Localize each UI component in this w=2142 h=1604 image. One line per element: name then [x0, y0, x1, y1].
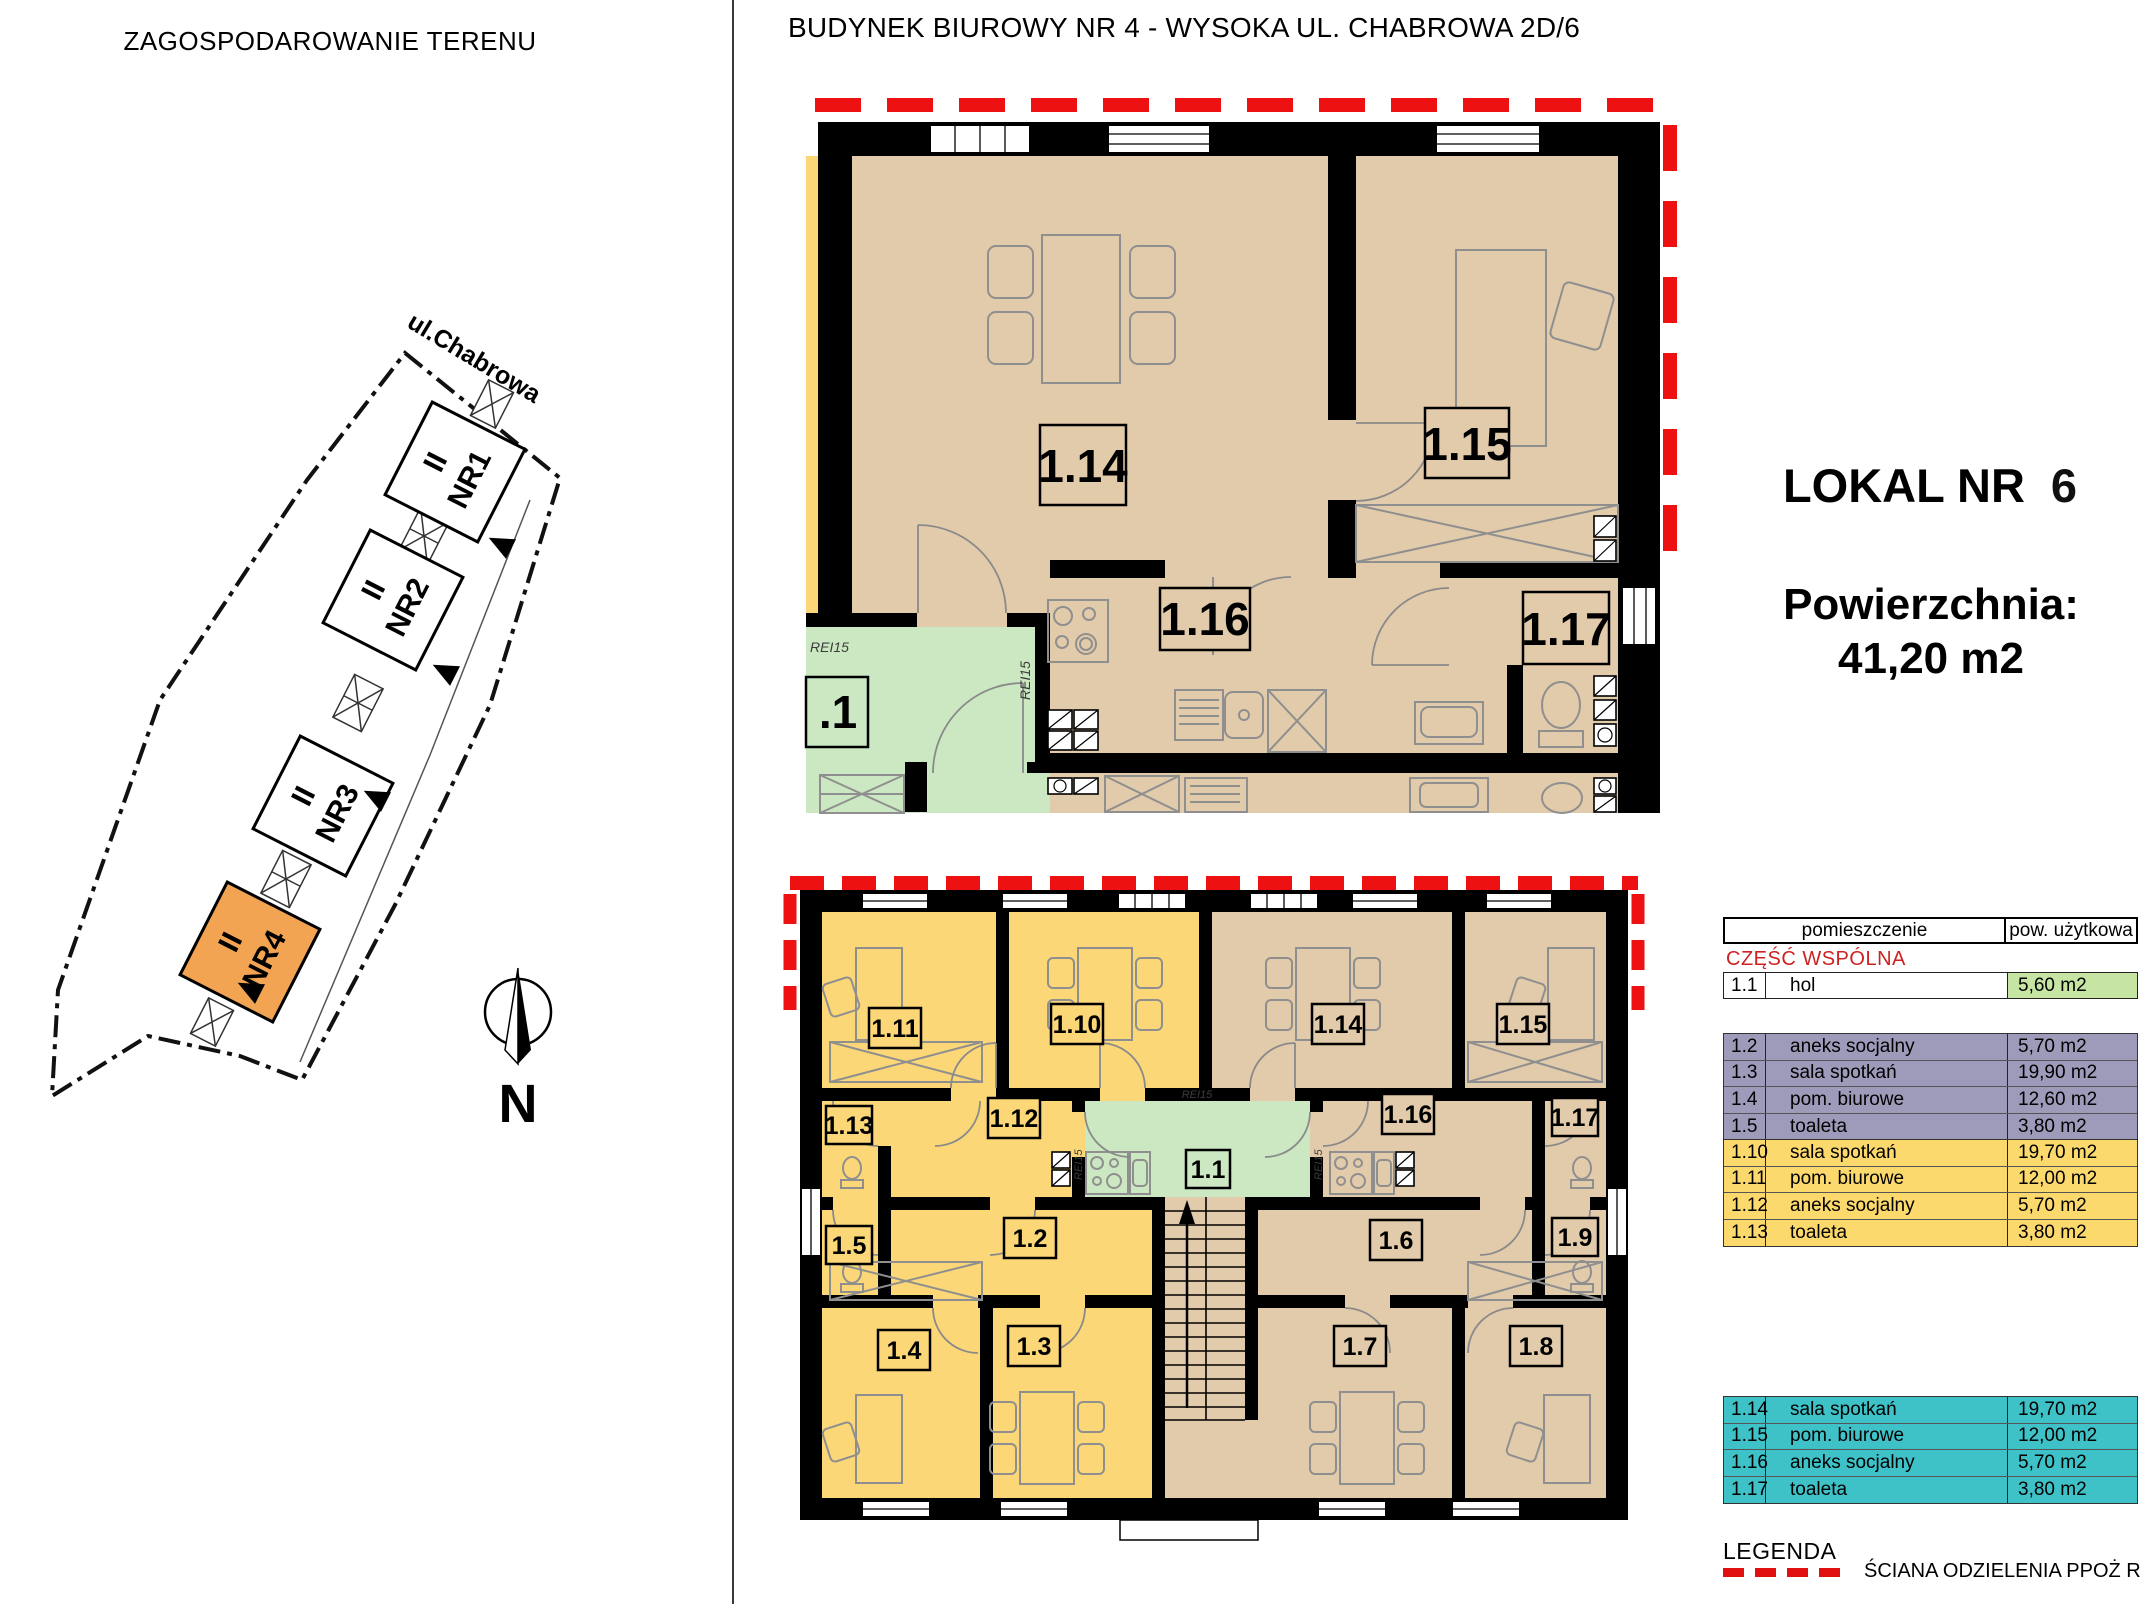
row-name: sala spotkań [1766, 1061, 2007, 1087]
row-area: 5,60 m2 [2007, 973, 2137, 998]
floor-label-1-5: 1.5 [832, 1232, 867, 1260]
row-area: 3,80 m2 [2007, 1114, 2137, 1141]
room-label-hall: .1 [819, 686, 857, 738]
rei15-floor-top: REI15 [1182, 1089, 1213, 1101]
room-label-1-17: 1.17 [1521, 603, 1611, 655]
row-name: sala spotkań [1766, 1397, 2007, 1423]
table-row: 1.3sala spotkań19,90 m2 [1724, 1061, 2137, 1088]
table-header-room: pomieszczenie [1725, 920, 2004, 942]
row-id: 1.13 [1724, 1220, 1766, 1247]
row-id: 1.15 [1724, 1424, 1766, 1450]
table-row: 1.16aneks socjalny5,70 m2 [1724, 1450, 2137, 1477]
row-id: 1.17 [1724, 1477, 1766, 1504]
floor-label-1-15: 1.15 [1499, 1011, 1548, 1039]
floor-plan-full: 1.11 1.10 1.14 1.15 1.13 1.12 1.16 1.17 … [770, 860, 1660, 1560]
row-id: 1.12 [1724, 1193, 1766, 1219]
building-nr3: II NR3 [253, 736, 393, 876]
floor-label-1-6: 1.6 [1379, 1227, 1414, 1255]
row-id: 1.3 [1724, 1061, 1766, 1087]
room-label-1-15: 1.15 [1422, 418, 1512, 470]
table-row: 1.2aneks socjalny5,70 m2 [1724, 1034, 2137, 1061]
table-group-purple: 1.2aneks socjalny5,70 m2 1.3sala spotkań… [1723, 1033, 2138, 1141]
table-row: 1.12aneks socjalny5,70 m2 [1724, 1193, 2137, 1220]
row-id: 1.16 [1724, 1450, 1766, 1476]
row-area: 12,00 m2 [2007, 1424, 2137, 1450]
row-id: 1.10 [1724, 1140, 1766, 1166]
row-id: 1.14 [1724, 1397, 1766, 1423]
floor-label-1-10: 1.10 [1053, 1011, 1102, 1039]
floor-label-1-8: 1.8 [1519, 1333, 1554, 1361]
building-title: BUDYNEK BIUROWY NR 4 - WYSOKA UL. CHABRO… [788, 12, 1598, 44]
legend-fire-wall-label: ŚCIANA ODZIELENIA PPOŻ REI120 [1864, 1560, 2142, 1583]
table-header: pomieszczenie pow. użytkowa [1723, 917, 2138, 944]
row-area: 12,00 m2 [2007, 1167, 2137, 1193]
floor-label-1-2: 1.2 [1013, 1225, 1048, 1253]
row-area: 19,70 m2 [2007, 1140, 2137, 1166]
fire-wall-dash-sample [1723, 1568, 1848, 1577]
table-row: 1.4pom. biurowe12,60 m2 [1724, 1087, 2137, 1114]
unit-title: LOKAL NR6 [1740, 458, 2120, 513]
building-nr2: II NR2 [323, 530, 463, 670]
legend-title: LEGENDA [1723, 1538, 1836, 1565]
table-row: 1.13toaleta3,80 m2 [1724, 1220, 2137, 1247]
rei15-label-rotated: REI15 [1017, 661, 1033, 700]
row-area: 5,70 m2 [2007, 1034, 2137, 1060]
table-row: 1.11pom. biurowe12,00 m2 [1724, 1167, 2137, 1194]
rei15-label: REI15 [810, 639, 849, 655]
floor-label-1-14: 1.14 [1314, 1011, 1363, 1039]
floor-label-1-9: 1.9 [1558, 1224, 1593, 1252]
common-area-label: CZĘŚĆ WSPÓLNA [1726, 948, 1906, 971]
floor-plan-detail: 1.14 1.15 1.16 1.17 .1 REI15 REI15 [780, 90, 1680, 815]
site-plan-map: ul.Chabrowa II NR1 II NR2 II NR3 [0, 0, 732, 1604]
floor-label-1-11: 1.11 [871, 1015, 918, 1043]
floor-label-1-7: 1.7 [1343, 1333, 1378, 1361]
floor-label-1-1: 1.1 [1191, 1156, 1226, 1184]
row-id: 1.1 [1724, 973, 1766, 998]
row-area: 12,60 m2 [2007, 1087, 2137, 1113]
page: ZAGOSPODAROWANIE TERENU BUDYNEK BIUROWY … [0, 0, 2142, 1604]
row-name: aneks socjalny [1766, 1034, 2007, 1060]
row-name: pom. biurowe [1766, 1424, 2007, 1450]
building-nr1: II NR1 [385, 402, 525, 542]
row-id: 1.11 [1724, 1167, 1766, 1193]
row-name: toaleta [1766, 1220, 2007, 1247]
room-label-1-14: 1.14 [1038, 440, 1128, 492]
row-area: 3,80 m2 [2007, 1477, 2137, 1504]
floor-label-1-4: 1.4 [887, 1337, 922, 1365]
table-group-yellow: 1.10sala spotkań19,70 m2 1.11pom. biurow… [1723, 1139, 2138, 1247]
street-label-text: ul.Chabrowa [403, 308, 547, 410]
compass: N [485, 968, 551, 1134]
table-row: 1.5toaleta3,80 m2 [1724, 1114, 2137, 1141]
row-name: pom. biurowe [1766, 1167, 2007, 1193]
floor-label-1-12: 1.12 [990, 1105, 1039, 1133]
row-id: 1.4 [1724, 1087, 1766, 1113]
room-label-1-16: 1.16 [1160, 593, 1250, 645]
row-name: toaleta [1766, 1477, 2007, 1504]
row-name: toaleta [1766, 1114, 2007, 1141]
table-row: 1.1 hol 5,60 m2 [1723, 972, 2138, 999]
floor-label-1-13: 1.13 [825, 1112, 874, 1140]
row-id: 1.5 [1724, 1114, 1766, 1141]
row-area: 5,70 m2 [2007, 1450, 2137, 1476]
row-area: 19,70 m2 [2007, 1397, 2137, 1423]
unit-area: Powierzchnia: 41,20 m2 [1740, 578, 2122, 686]
floor-label-1-16: 1.16 [1384, 1101, 1433, 1129]
floor-label-1-17: 1.17 [1551, 1104, 1600, 1132]
row-area: 3,80 m2 [2007, 1220, 2137, 1247]
row-area: 5,70 m2 [2007, 1193, 2137, 1219]
unit-area-label: Powierzchnia: [1740, 578, 2122, 632]
rei15-floor-left: REI15 [1073, 1149, 1085, 1180]
rei15-floor-right: REI15 [1313, 1149, 1325, 1180]
floor-label-1-3: 1.3 [1017, 1333, 1052, 1361]
building-nr4-highlighted: II NR4 [180, 882, 320, 1022]
street-label: ul.Chabrowa [403, 308, 547, 410]
row-name: hol [1766, 973, 2007, 998]
row-id: 1.2 [1724, 1034, 1766, 1060]
row-name: sala spotkań [1766, 1140, 2007, 1166]
table-row: 1.10sala spotkań19,70 m2 [1724, 1140, 2137, 1167]
table-row: 1.15pom. biurowe12,00 m2 [1724, 1424, 2137, 1451]
unit-number: 6 [2051, 459, 2077, 512]
compass-n-label: N [499, 1074, 538, 1134]
row-name: aneks socjalny [1766, 1450, 2007, 1476]
row-name: pom. biurowe [1766, 1087, 2007, 1113]
row-name: aneks socjalny [1766, 1193, 2007, 1219]
panel-divider [732, 0, 734, 1604]
unit-title-label: LOKAL NR [1783, 459, 2025, 512]
table-row: 1.17toaleta3,80 m2 [1724, 1477, 2137, 1504]
table-row: 1.14sala spotkań19,70 m2 [1724, 1397, 2137, 1424]
table-header-area: pow. użytkowa [2004, 919, 2136, 942]
table-group-cyan: 1.14sala spotkań19,70 m2 1.15pom. biurow… [1723, 1396, 2138, 1504]
unit-area-value: 41,20 m2 [1740, 632, 2122, 686]
row-area: 19,90 m2 [2007, 1061, 2137, 1087]
detail-room-fills [806, 156, 1628, 813]
